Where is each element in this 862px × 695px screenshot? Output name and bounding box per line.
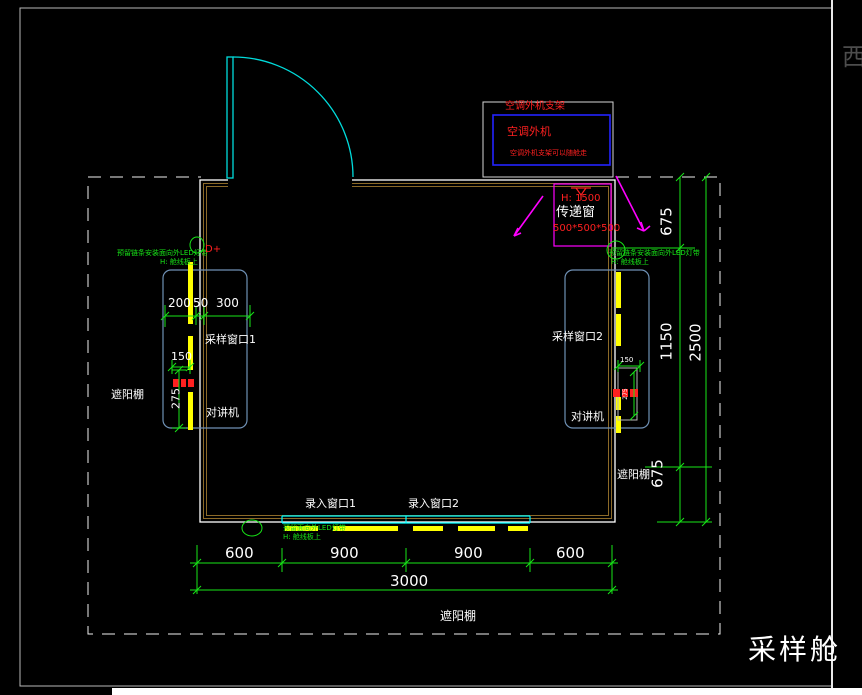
transfer-height-label: H: 1500 [561, 194, 601, 204]
transfer-window-label: 传递窗 [556, 206, 595, 219]
led-strip-left [188, 262, 193, 430]
door-opening-gap [228, 173, 352, 190]
intercom-left-label: 对讲机 [206, 407, 239, 418]
dim-275-left: 275 [171, 377, 182, 421]
led-height-left: H: 舱线板上 [160, 259, 198, 266]
ac-bracket-label: 空调外机支架 [505, 102, 565, 112]
led-note-right: 预留链条安装面向外LED灯带 [609, 250, 700, 257]
dim-900-1: 900 [330, 546, 359, 561]
dim-150-left: 150 [171, 351, 192, 362]
drawing-title: 采样舱 [748, 636, 841, 664]
dim-1150: 1150 [660, 320, 675, 364]
dim-300: 300 [216, 297, 239, 309]
led-note-left: 预留链条安装面向外LED灯带 [117, 250, 208, 257]
led-height-right: H: 舱线板上 [611, 259, 649, 266]
dim-200: 200 [168, 297, 191, 309]
dim-3000: 3000 [390, 574, 428, 589]
entry-window2-label: 录入窗口2 [408, 498, 459, 509]
cad-drawing-canvas[interactable]: 空调外机支架 空调外机 空调外机支架可以随舱走 H: 1500 传递窗 500*… [0, 0, 862, 695]
door-swing [227, 57, 353, 178]
ac-unit-box [483, 102, 613, 177]
dim-2500: 2500 [689, 321, 704, 365]
dim-150-right: 150 [620, 357, 633, 364]
dim-600-2: 600 [556, 546, 585, 561]
canopy-bottom-label: 遮阳棚 [440, 610, 476, 622]
intercom-right-label: 对讲机 [571, 411, 604, 422]
dim-600-1: 600 [225, 546, 254, 561]
canopy-right-label: 遮阳棚 [617, 469, 650, 480]
leader-arrow-left-icon [514, 196, 543, 236]
dim-275-right: 275 [623, 372, 629, 416]
terminal-label: D+ [205, 245, 221, 255]
transfer-size-label: 500*500*500 [553, 224, 620, 234]
sampling-window2-label: 采样窗口2 [552, 331, 603, 342]
dim-50: 50 [193, 297, 208, 309]
canopy-left-label: 遮阳棚 [111, 389, 144, 400]
corner-mark: 西 [842, 45, 862, 69]
ac-note: 空调外机支架可以随舱走 [510, 150, 587, 157]
leader-arrow-right-icon [616, 176, 650, 231]
sampling-window1-label: 采样窗口1 [205, 334, 256, 345]
ac-unit-label: 空调外机 [507, 126, 551, 137]
dim-675-bottom: 675 [651, 452, 666, 496]
led-height-bottom: H: 舱线板上 [283, 534, 321, 541]
led-note-bottom: 预留面向外LED灯带 [283, 525, 346, 532]
cad-linework [0, 0, 862, 695]
entry-window1-label: 录入窗口1 [305, 498, 356, 509]
drawing-frame [20, 0, 862, 695]
right-window-region [565, 270, 649, 433]
dim-900-2: 900 [454, 546, 483, 561]
dim-675-top: 675 [660, 200, 675, 244]
reference-circles [190, 237, 625, 536]
